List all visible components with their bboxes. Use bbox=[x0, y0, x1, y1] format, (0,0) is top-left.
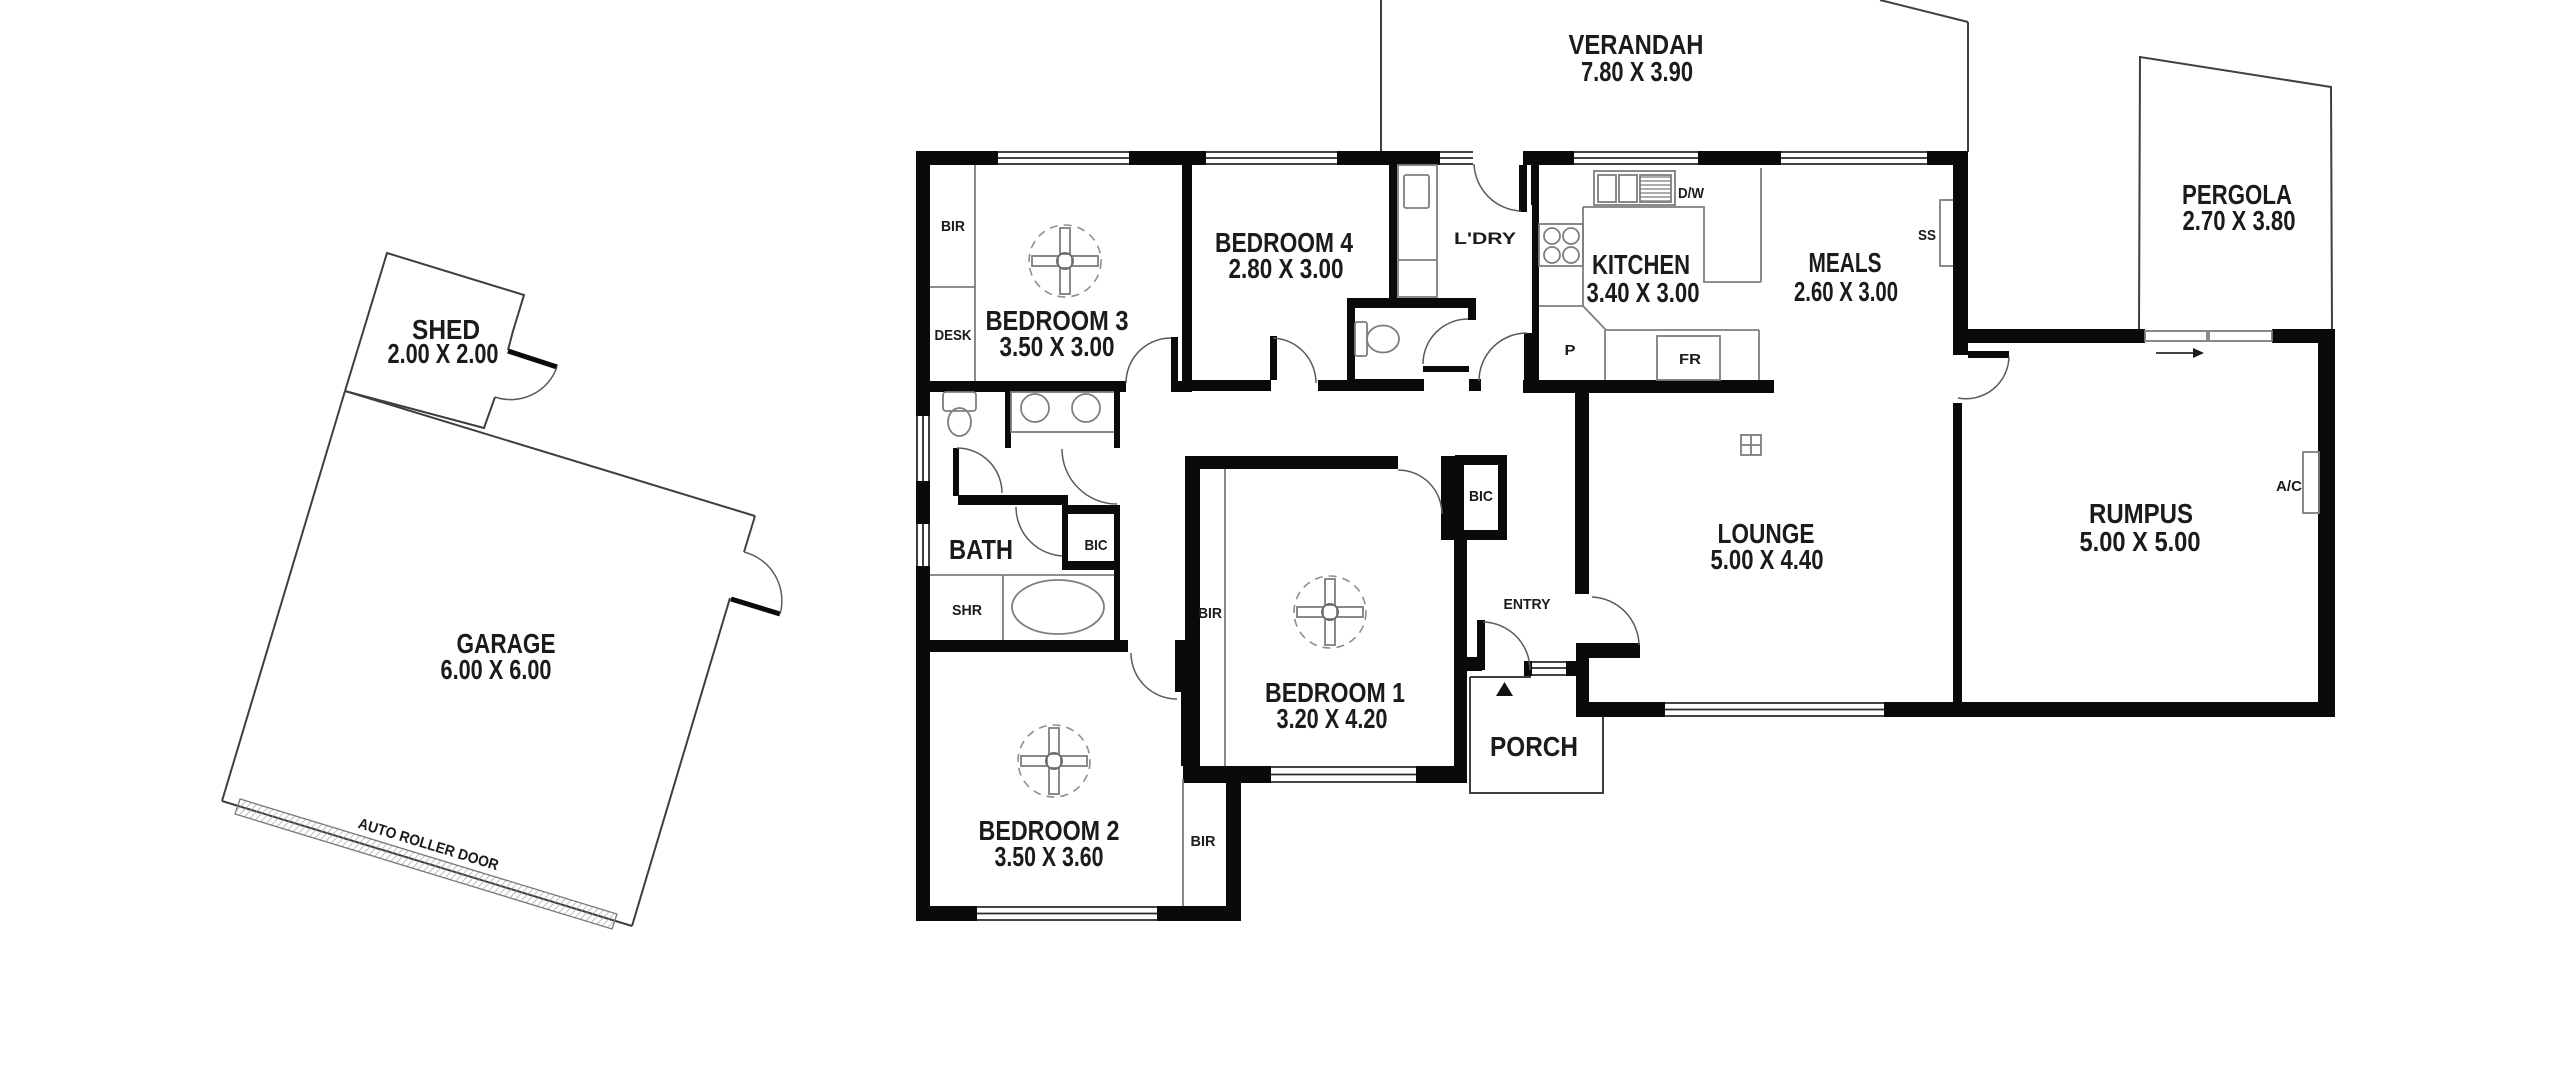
svg-text:P: P bbox=[1565, 342, 1576, 359]
svg-text:KITCHEN: KITCHEN bbox=[1592, 249, 1690, 280]
svg-text:A/C: A/C bbox=[2276, 478, 2302, 495]
svg-text:ENTRY: ENTRY bbox=[1504, 596, 1551, 613]
svg-text:7.80 X 3.90: 7.80 X 3.90 bbox=[1581, 56, 1693, 87]
svg-text:D/W: D/W bbox=[1678, 185, 1705, 202]
svg-text:3.50 X 3.60: 3.50 X 3.60 bbox=[995, 841, 1104, 872]
svg-text:2.80 X 3.00: 2.80 X 3.00 bbox=[1229, 253, 1344, 284]
svg-text:BIC: BIC bbox=[1085, 537, 1108, 554]
svg-text:5.00 X 5.00: 5.00 X 5.00 bbox=[2080, 526, 2201, 557]
svg-text:3.20 X 4.20: 3.20 X 4.20 bbox=[1277, 703, 1388, 734]
svg-text:PORCH: PORCH bbox=[1490, 731, 1578, 762]
svg-text:6.00 X 6.00: 6.00 X 6.00 bbox=[441, 654, 552, 685]
svg-text:BATH: BATH bbox=[949, 534, 1013, 565]
svg-text:SS: SS bbox=[1918, 227, 1936, 244]
svg-text:2.70 X 3.80: 2.70 X 3.80 bbox=[2183, 205, 2296, 236]
svg-text:BIR: BIR bbox=[941, 218, 965, 235]
svg-text:MEALS: MEALS bbox=[1809, 247, 1882, 278]
svg-text:L'DRY: L'DRY bbox=[1454, 229, 1517, 248]
svg-text:5.00 X 4.40: 5.00 X 4.40 bbox=[1711, 544, 1824, 575]
svg-text:FR: FR bbox=[1679, 351, 1701, 368]
svg-text:3.40 X 3.00: 3.40 X 3.00 bbox=[1587, 277, 1700, 308]
svg-text:BIR: BIR bbox=[1191, 833, 1216, 850]
svg-text:SHR: SHR bbox=[952, 602, 982, 619]
svg-text:BIC: BIC bbox=[1469, 488, 1493, 505]
svg-text:2.60 X 3.00: 2.60 X 3.00 bbox=[1794, 276, 1898, 307]
svg-text:2.00 X 2.00: 2.00 X 2.00 bbox=[388, 338, 499, 369]
svg-text:RUMPUS: RUMPUS bbox=[2089, 498, 2193, 529]
svg-text:3.50 X 3.00: 3.50 X 3.00 bbox=[1000, 331, 1115, 362]
svg-text:BIR: BIR bbox=[1198, 605, 1222, 622]
svg-text:DESK: DESK bbox=[935, 327, 972, 344]
